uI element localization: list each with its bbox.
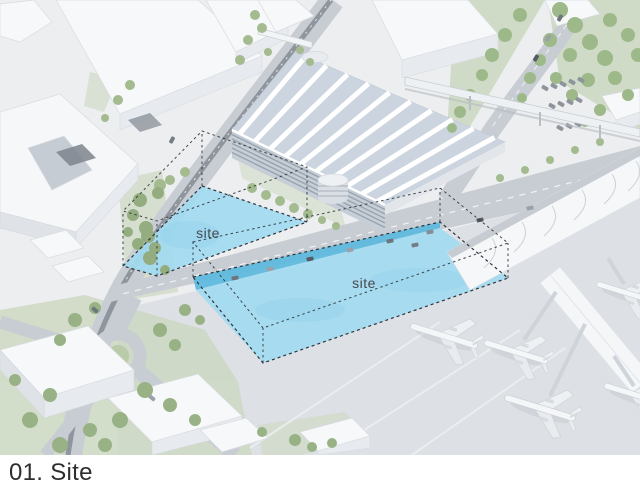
slide-title: 01. Site: [0, 455, 93, 491]
caption-band: 01. Site: [0, 455, 640, 491]
aerial-3d-view: site site: [0, 0, 640, 455]
slide: site site 01. Site: [0, 0, 640, 491]
site-label-left: site: [196, 225, 220, 241]
site-plan-rendering: site site: [0, 0, 640, 455]
site-label-right: site: [352, 275, 376, 291]
round-tower: [318, 174, 348, 204]
round-roof: [302, 52, 328, 63]
